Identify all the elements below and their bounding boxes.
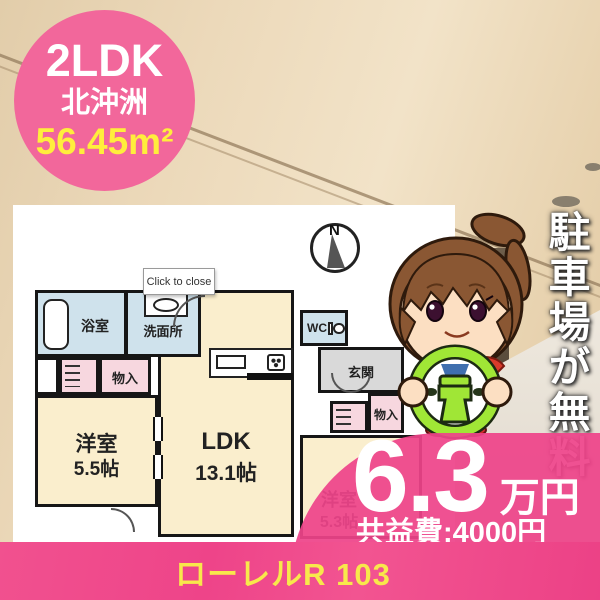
room-label: LDK [161, 428, 291, 456]
property-summary-badge: 2LDK 北沖洲 56.45m² [14, 10, 195, 191]
window-symbol [153, 417, 163, 441]
floor-area: 56.45m² [36, 121, 174, 164]
window-symbol [153, 455, 163, 479]
hand [483, 378, 511, 406]
room-label: WC [307, 321, 327, 335]
mascot-driver-illustration [383, 208, 533, 443]
listing-card: N Click to close LDK 13.1帖 洋室 5.3帖 浴室 洗面… [0, 0, 600, 600]
hand [399, 378, 427, 406]
downlight [585, 163, 600, 171]
downlight [552, 196, 580, 207]
kitchen-counter-icon [209, 348, 293, 378]
property-name-bar: ローレルR 103 [0, 542, 600, 600]
room-label: 物入 [102, 368, 148, 387]
location-name: 北沖洲 [61, 85, 148, 121]
compass-icon: N [310, 223, 360, 273]
room-size: 5.5帖 [38, 454, 155, 481]
closet-shelf [59, 357, 99, 395]
room-closet-left: 物入 [99, 357, 151, 395]
room-bedroom-left: 洋室 5.5帖 [35, 395, 158, 507]
closet-small [35, 357, 59, 395]
room-wc: WC [300, 310, 348, 346]
room-size: 13.1帖 [161, 457, 291, 487]
layout-type: 2LDK [46, 37, 164, 84]
room-bath: 浴室 [35, 290, 127, 357]
property-name: ローレルR 103 [175, 549, 391, 594]
kitchen-sink-icon [216, 355, 246, 369]
door-arc [111, 508, 135, 532]
close-floorplan-button[interactable]: Click to close [143, 268, 215, 295]
stove-icon [267, 354, 285, 371]
